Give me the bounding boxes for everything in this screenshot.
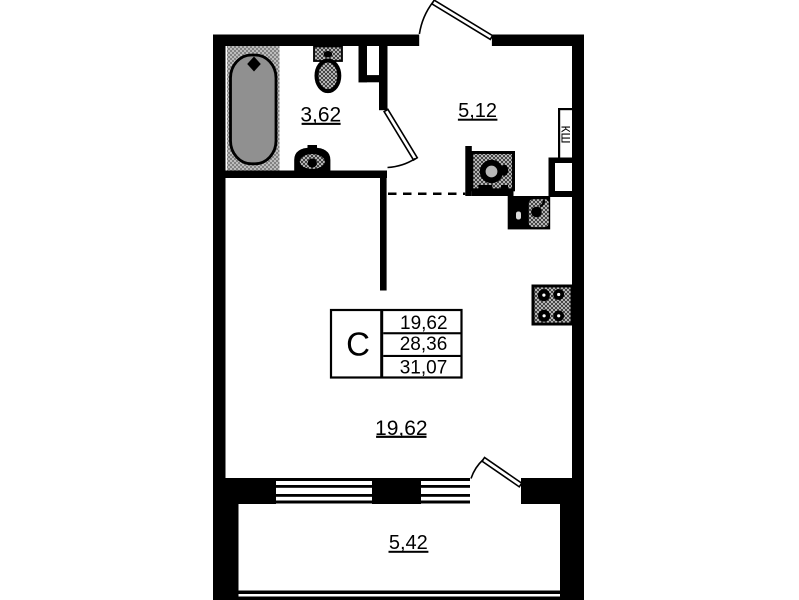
- svg-text:КШ: КШ: [559, 126, 573, 144]
- svg-text:5,42: 5,42: [389, 532, 428, 554]
- svg-text:5,12: 5,12: [458, 100, 497, 122]
- svg-text:28,36: 28,36: [400, 334, 448, 355]
- svg-text:C: C: [346, 325, 370, 362]
- svg-text:31,07: 31,07: [400, 358, 448, 379]
- svg-text:19,62: 19,62: [400, 313, 448, 334]
